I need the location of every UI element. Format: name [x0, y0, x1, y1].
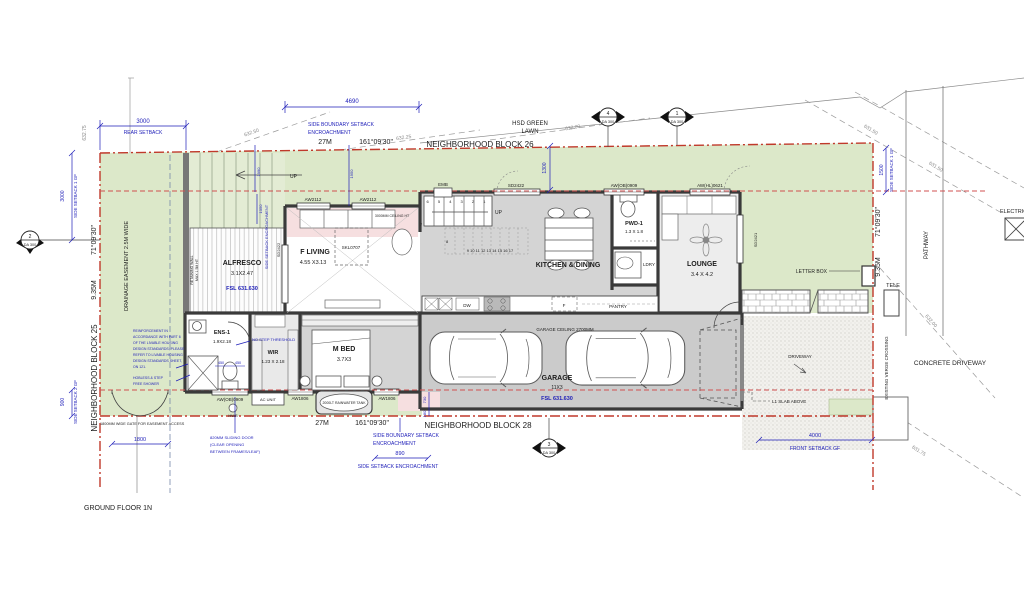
- dim-180: 180: [422, 410, 427, 417]
- tele-pit: [884, 290, 899, 316]
- dim-4690: 4690: [345, 99, 359, 105]
- encroach-bottom-2: ENCROACHMENT: [373, 441, 416, 447]
- marker-da: DA 300: [671, 120, 683, 124]
- kitchen-bench: DW F PANTRY: [422, 296, 658, 312]
- dim-1990: 1990: [256, 167, 261, 177]
- garage-name: GARAGE: [542, 375, 573, 382]
- retaining-wall-label-2: MAX 1.5M HT: [195, 258, 199, 281]
- reinforcement-note-line: REINFORCEMENT IN: [133, 329, 168, 333]
- encroach-side-label: SIDE SETBACK ENCROACHMENT: [358, 464, 439, 470]
- marker-number: 4: [607, 111, 610, 117]
- sliding-door-note-line: BETWEEN FRAMES/LEAF): [210, 449, 261, 454]
- garage-fsl: FSL 631.630: [541, 396, 573, 402]
- up-external-label: UP: [290, 174, 298, 180]
- sliding-door-note-line: 820MM SLIDING DOOR: [210, 435, 254, 440]
- north-boundary-bearing: 161°09'30": [359, 138, 393, 146]
- dim-730: 730: [422, 396, 427, 403]
- marker-da: DA 300: [602, 120, 614, 124]
- marker-da: DA 300: [543, 451, 555, 455]
- shower-note-line: FREE SHOWER: [133, 382, 160, 386]
- window-label-aw2112: AW2112: [305, 197, 322, 202]
- emb-box: [434, 188, 452, 197]
- sheet-title: GROUND FLOOR 1N: [84, 505, 152, 512]
- reinforcement-note-line: OF THE LIVABLE HOUSING: [133, 341, 178, 345]
- retaining-wall: [183, 153, 189, 313]
- rainwater-tank: 2000LT RAINWATER TANK: [316, 391, 372, 414]
- pantry-label: PANTRY: [609, 304, 627, 309]
- door-label-sd2422-side: SD2422: [276, 242, 281, 257]
- alfresco-name: ALFRESCO: [223, 260, 262, 267]
- lounge-name: LOUNGE: [687, 261, 717, 268]
- lawn-label-2: LAWN: [521, 129, 538, 135]
- side-setback-2-dim: 900: [60, 398, 66, 407]
- dishwasher-label: DW: [463, 303, 471, 308]
- verge-crossing-label: EXISTING VERGE CROSSING: [884, 336, 889, 400]
- window-label-aw-ob-0909-south: AW(OB)0909: [217, 397, 244, 402]
- electrical-label: ELECTRICAL: [1000, 209, 1024, 215]
- marker-da: DA 300: [24, 243, 36, 247]
- ldry-name: LDRY: [643, 262, 655, 267]
- south-boundary-length: 27M: [315, 420, 329, 427]
- ac-unit-label: AC UNIT: [260, 397, 277, 402]
- survey-marker-1: 1 DA 300: [660, 108, 694, 145]
- fridge-label: F: [563, 303, 566, 308]
- side-setback-1-right-label: SIDE SETBACK 1 GF: [889, 148, 894, 192]
- garage-dims: 11X3: [551, 385, 563, 391]
- window-label-aw2112: AW2112: [360, 197, 377, 202]
- block-25-label: NEIGHBORHOOD BLOCK 25: [90, 324, 99, 432]
- reinforcement-note-line: ACCORDANCE WITH PART 6: [133, 335, 181, 339]
- side-setback-1-left-label: SIDE SETBACK 1 GF: [73, 174, 78, 218]
- dim-890: 890: [395, 451, 404, 457]
- dim-1300: 1300: [542, 162, 548, 173]
- floor-plan-sheet: 632.75 632.50 632.25 632.00 631.50 631.5…: [0, 0, 1024, 600]
- reinforcement-note-line: REFER TO LIVABLE HOUSING: [133, 353, 183, 357]
- north-boundary-length: 27M: [318, 139, 332, 146]
- contour-label: 631.75: [910, 444, 926, 457]
- stair-numbers-lower: 6 5 4 3 2 1: [427, 199, 490, 204]
- gate-note-label: 1800MM WIDE GATE FOR EASEMENT ACCESS: [100, 422, 185, 426]
- east-boundary-length: 9.35M: [875, 257, 882, 277]
- kitchen-dining-name: KITCHEN & DINING: [536, 262, 601, 269]
- pwd-name: PWD-1: [625, 221, 643, 227]
- floor-plan-drawing: 632.75 632.50 632.25 632.00 631.50 631.5…: [0, 0, 1024, 600]
- concrete-driveway-label: CONCRETE DRIVEWAY: [914, 360, 987, 367]
- door-label-sd2421: SD2421: [753, 232, 758, 247]
- gate-dim: 1800: [134, 437, 146, 443]
- electrical-pit: [1005, 218, 1024, 240]
- mbed-dims: 3.7X3: [337, 357, 351, 363]
- contour-label: 632.50: [243, 128, 260, 139]
- survey-marker-2: 2 DA 300: [16, 231, 100, 254]
- reinforcement-note-line: DESIGN STANDARDS; PLEASE: [133, 347, 185, 351]
- west-boundary-bearing: 71°09'30": [90, 224, 98, 254]
- f-living-dims: 4.55 X3.13: [300, 260, 327, 266]
- up-internal-label: UP: [495, 210, 503, 216]
- driveway-label: DRIVEWAY: [788, 354, 812, 359]
- contour-label: 631.50: [862, 124, 878, 137]
- rear-setback-dim: 3000: [136, 119, 150, 125]
- shower-note-line: HOBLESS & STEP: [133, 376, 164, 380]
- verge-crossing-slab: [873, 397, 908, 440]
- emb-label: EMB: [438, 182, 448, 187]
- block-26-label: NEIGHBORHOOD BLOCK 26: [426, 140, 534, 149]
- alfresco-fsl: FSL 631.630: [226, 286, 258, 292]
- mbed-name: M BED: [333, 346, 356, 353]
- tele-label: TELE: [886, 283, 900, 289]
- west-boundary-length: 9.35M: [91, 280, 98, 300]
- side-setback-1-left-dim: 3000: [60, 190, 66, 201]
- front-setback-dim: 4000: [809, 433, 821, 439]
- drainage-easement-label: DRAINAGE EASEMENT 2.5M WIDE: [124, 221, 130, 311]
- retaining-wall-label-1: RETAINING WALL: [190, 255, 194, 284]
- garage-ceiling-note: GARAGE CEILING 2700MM: [536, 327, 594, 332]
- lawn-label-1: HSD GREEN: [512, 121, 548, 127]
- rear-setback-label: REAR SETBACK: [124, 130, 163, 136]
- letter-box-label: LETTER BOX: [796, 269, 828, 275]
- f-living-name: F LIVING: [300, 249, 330, 256]
- door-label-sd2422: SD2422: [508, 183, 525, 188]
- skylight-label: SKL0707: [342, 245, 361, 250]
- encroach-vertical-label: SIDE SETBACK ENCROACHMENT: [264, 204, 269, 269]
- dim-1050: 1050: [258, 204, 263, 214]
- wir-name: WIR: [268, 350, 279, 356]
- ens-name: ENS-1: [214, 330, 230, 336]
- contour-label: 632.75: [82, 125, 88, 141]
- ens-dims: 1.9X2.18: [213, 339, 232, 344]
- marker-number: 2: [29, 234, 32, 240]
- l1-slab-label: L1 SLAB ABOVE: [772, 399, 806, 404]
- sliding-door-note-line: (CLEAR OPENING: [210, 442, 244, 447]
- marker-number: 1: [676, 111, 679, 117]
- window-label-aw1806: AW1806: [378, 396, 396, 401]
- block-28-label: NEIGHBORHOOD BLOCK 28: [424, 421, 532, 430]
- dim-1950: 1950: [349, 169, 354, 179]
- tank-label: 2000LT RAINWATER TANK: [322, 401, 366, 405]
- contour-label: 632.00: [565, 124, 581, 133]
- south-boundary-bearing: 161°09'30": [355, 419, 389, 427]
- hws-label: HWS: [228, 413, 238, 418]
- east-boundary-bearing: 71°09'30": [874, 206, 882, 236]
- pwd-dims: 1.3 X 1.8: [625, 229, 644, 234]
- lounge-dims: 3.4 X 4.2: [691, 272, 713, 278]
- contour-label: 632.25: [396, 134, 412, 142]
- dim-450-b: 450: [235, 361, 241, 365]
- window-label-aw-ob-0909: AW(OB)0909: [611, 183, 638, 188]
- driveway-surface: [742, 316, 873, 450]
- f-living-ceiling-note: 3000MM CEILING HT: [375, 214, 410, 218]
- wir-dims: 1.23 X 2.18: [261, 359, 285, 364]
- window-label-aw-hl-0621: AW(HL)0621: [697, 183, 723, 188]
- dim-1500: 1500: [879, 164, 885, 175]
- stair-numbers-upper: 9 10 11 12 13 14 15 16 17: [467, 248, 514, 253]
- contour-label: 632.00: [923, 314, 938, 330]
- alfresco-dims: 3.1X2.47: [231, 271, 253, 277]
- no-step-note: NO STEP THRESHOLD: [252, 337, 295, 342]
- side-setback-2-label: SIDE SETBACK 2 GF: [73, 380, 78, 424]
- marker-number: 3: [548, 442, 551, 448]
- reinforcement-note-line: ON 121.: [133, 365, 146, 369]
- encroach-bottom-1: SIDE BOUNDARY SETBACK: [373, 433, 440, 439]
- reinforcement-note-line: DESIGN STANDARDS SHEET,: [133, 359, 182, 363]
- survey-marker-3: 3 DA 300: [532, 418, 566, 457]
- encroach-top-1: SIDE BOUNDARY SETBACK: [308, 122, 375, 128]
- window-label-aw1806: AW1806: [291, 396, 309, 401]
- survey-marker-4: 4 DA 300: [591, 108, 625, 147]
- pathway-label: PATHWAY: [924, 231, 930, 259]
- front-setback-label: FRONT SETBACK GF: [790, 446, 840, 452]
- dim-450-a: 450: [218, 361, 224, 365]
- encroach-top-2: ENCROACHMENT: [308, 130, 351, 136]
